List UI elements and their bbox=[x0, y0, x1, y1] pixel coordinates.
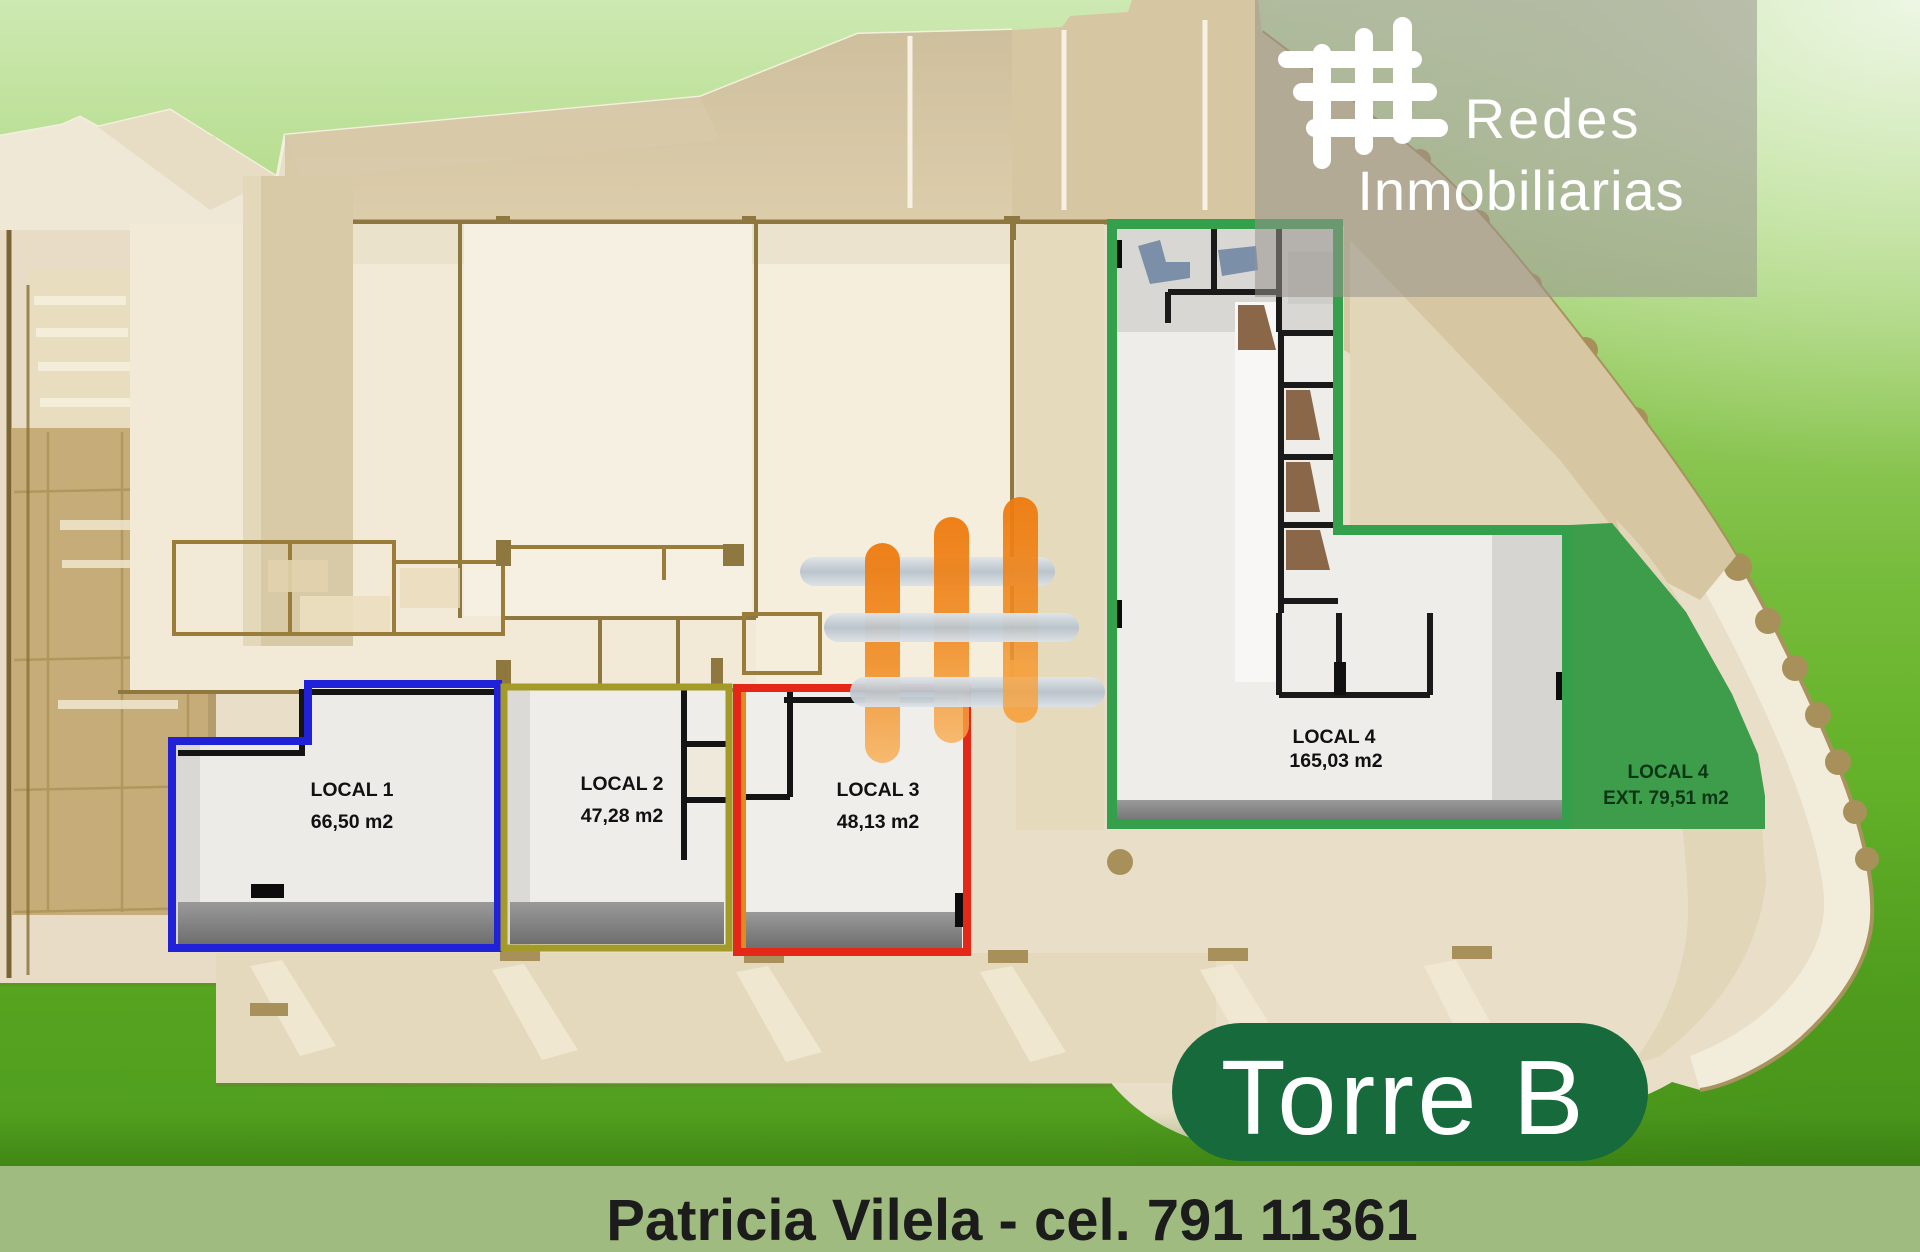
svg-text:LOCAL 4: LOCAL 4 bbox=[1292, 726, 1375, 748]
svg-text:Redes: Redes bbox=[1465, 87, 1642, 150]
svg-text:LOCAL 1: LOCAL 1 bbox=[310, 779, 393, 801]
svg-text:66,50 m2: 66,50 m2 bbox=[311, 811, 394, 833]
svg-text:LOCAL 4: LOCAL 4 bbox=[1628, 762, 1709, 783]
svg-text:LOCAL 3: LOCAL 3 bbox=[836, 779, 919, 801]
svg-text:47,28 m2: 47,28 m2 bbox=[581, 805, 664, 827]
svg-text:165,03 m2: 165,03 m2 bbox=[1289, 750, 1382, 772]
svg-text:Torre B: Torre B bbox=[1221, 1039, 1587, 1157]
svg-text:48,13 m2: 48,13 m2 bbox=[837, 811, 920, 833]
svg-text:EXT. 79,51 m2: EXT. 79,51 m2 bbox=[1603, 788, 1729, 809]
svg-text:Inmobiliarias: Inmobiliarias bbox=[1357, 159, 1684, 222]
svg-text:Patricia Vilela - cel. 791: Patricia Vilela - cel. 791 11361 bbox=[606, 1188, 1418, 1252]
svg-text:LOCAL 2: LOCAL 2 bbox=[580, 773, 663, 795]
